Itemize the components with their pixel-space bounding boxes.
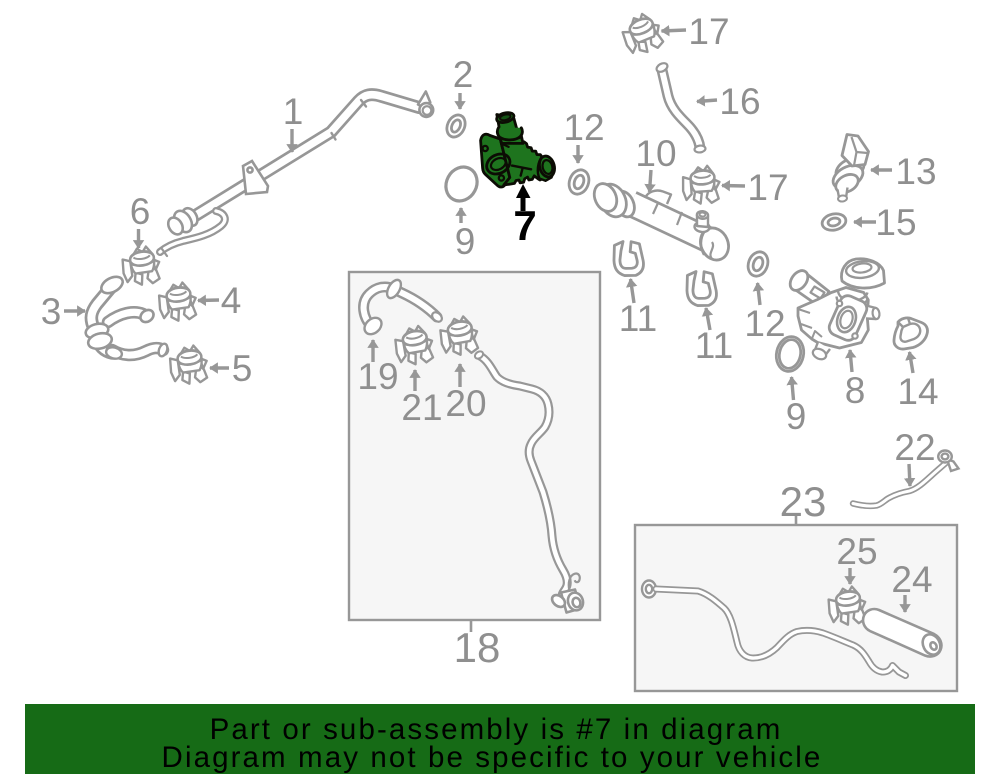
svg-text:3: 3 xyxy=(41,291,62,332)
svg-text:4: 4 xyxy=(221,280,242,321)
svg-text:24: 24 xyxy=(891,559,932,600)
svg-text:1: 1 xyxy=(283,91,304,132)
svg-text:25: 25 xyxy=(836,531,877,572)
svg-text:17: 17 xyxy=(688,11,729,52)
svg-text:20: 20 xyxy=(445,383,486,424)
svg-text:10: 10 xyxy=(635,133,676,174)
svg-text:12: 12 xyxy=(563,107,604,148)
svg-text:6: 6 xyxy=(130,191,151,232)
svg-text:11: 11 xyxy=(695,325,733,366)
svg-text:11: 11 xyxy=(619,298,657,339)
svg-text:13: 13 xyxy=(895,151,936,192)
svg-text:2: 2 xyxy=(453,54,474,95)
svg-text:18: 18 xyxy=(454,624,501,671)
svg-text:14: 14 xyxy=(897,371,938,412)
svg-text:21: 21 xyxy=(401,387,442,428)
svg-text:7: 7 xyxy=(513,202,536,249)
svg-text:15: 15 xyxy=(875,202,916,243)
svg-text:9: 9 xyxy=(455,221,476,262)
svg-text:12: 12 xyxy=(744,303,785,344)
svg-text:16: 16 xyxy=(719,81,760,122)
svg-text:8: 8 xyxy=(845,370,866,411)
svg-text:Diagram may not be specific to: Diagram may not be specific to your vehi… xyxy=(162,741,823,774)
svg-text:23: 23 xyxy=(780,478,827,525)
svg-text:17: 17 xyxy=(747,167,788,208)
svg-text:5: 5 xyxy=(232,348,253,389)
svg-text:9: 9 xyxy=(786,396,807,437)
svg-text:22: 22 xyxy=(894,427,935,468)
svg-text:19: 19 xyxy=(357,356,398,397)
